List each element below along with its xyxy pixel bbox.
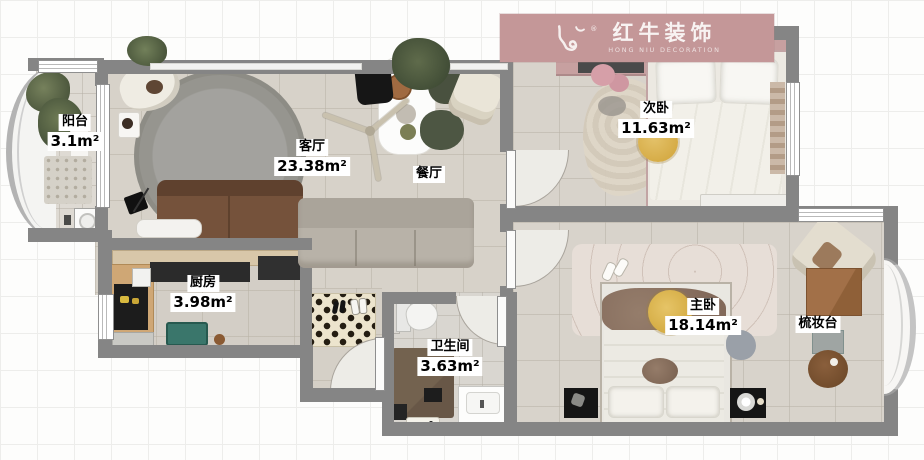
balcony-small-item	[64, 215, 71, 225]
fridge-food-item	[132, 298, 139, 304]
salad-bowl	[400, 124, 416, 140]
window	[98, 294, 114, 340]
curtain-line	[150, 63, 362, 70]
master-bed-pillow	[608, 386, 664, 418]
shower-fixture	[424, 388, 442, 402]
room-area: 18.14m²	[665, 316, 741, 336]
window	[786, 82, 800, 176]
room-label-kitchen: 厨房 3.98m²	[170, 275, 235, 312]
bathroom-faucet	[480, 400, 484, 408]
brand-banner: ® 红牛装饰 HONG NIU DECORATION	[500, 14, 774, 62]
shoes-white	[358, 298, 367, 315]
door-leaf-entry	[375, 337, 385, 391]
room-area: 3.63m²	[417, 357, 482, 377]
balcony-mat	[44, 156, 92, 204]
gray-sofa	[298, 198, 474, 268]
window	[798, 208, 884, 222]
room-area: 23.38m²	[274, 157, 350, 177]
door-leaf-master	[506, 230, 516, 289]
brown-sofa-seam	[228, 196, 230, 241]
wood-desk	[806, 268, 862, 316]
gray-sofa-seam	[414, 230, 416, 266]
brand-name-en: HONG NIU DECORATION	[608, 46, 721, 54]
side-table-tray	[122, 118, 133, 129]
room-label-master: 主卧 18.14m²	[665, 298, 741, 335]
room-name: 卫生间	[427, 339, 472, 356]
floor-plan: 阳台 3.1m² 客厅 23.38m² 餐厅 次卧 11.63m² 厨房 3.9…	[0, 0, 924, 460]
bed-pillow	[655, 57, 717, 105]
master-bed-pillow	[666, 386, 720, 418]
wall	[98, 345, 312, 358]
room-name: 厨房	[187, 275, 219, 292]
fridge-food-item	[120, 296, 129, 303]
kitchen-cart-teal	[166, 322, 208, 346]
fan-hub	[365, 126, 375, 136]
registered-mark: ®	[590, 25, 597, 33]
desk-chair-pink	[591, 64, 615, 86]
room-label-dining: 餐厅	[413, 166, 445, 183]
door-leaf-bathroom	[497, 296, 507, 347]
wall	[95, 206, 108, 234]
vanity-chair	[808, 350, 848, 388]
nightstand-dot	[757, 398, 764, 405]
wall	[786, 26, 799, 86]
bull-logo-icon	[553, 24, 587, 52]
room-label-bathroom: 卫生间 3.63m²	[417, 339, 482, 376]
wall-plant	[127, 36, 167, 66]
room-label-vanity: 梳妆台	[795, 316, 840, 333]
vanity-chair-dot	[830, 358, 838, 366]
round-cushion	[642, 358, 678, 384]
gray-sofa-seam	[355, 230, 357, 266]
room-name: 梳妆台	[795, 316, 840, 333]
dining-plant	[392, 38, 450, 90]
coffee-table	[136, 219, 202, 238]
curtain-line	[450, 63, 508, 70]
room-name: 主卧	[687, 298, 719, 315]
door-leaf-bedroom2	[506, 150, 516, 209]
refrigerator	[114, 284, 148, 330]
chaise-pillow	[146, 80, 163, 94]
kitchen-sink	[132, 268, 151, 287]
room-name: 次卧	[640, 101, 672, 118]
room-label-living: 客厅 23.38m²	[274, 139, 350, 176]
window	[38, 60, 98, 73]
room-name: 餐厅	[413, 166, 445, 183]
brand-name-cn: 红牛装饰	[612, 23, 716, 44]
kitchen-stool	[214, 334, 225, 345]
curtain-strip	[770, 82, 785, 174]
wall	[504, 422, 898, 436]
room-label-bedroom2: 次卧 11.63m²	[618, 101, 694, 138]
room-area: 3.1m²	[48, 132, 103, 152]
wall	[382, 422, 562, 436]
room-area: 11.63m²	[618, 119, 694, 139]
room-name: 客厅	[296, 139, 328, 156]
room-name: 阳台	[59, 114, 91, 131]
nightstand-lamp-disc	[737, 393, 755, 411]
room-label-balcony: 阳台 3.1m²	[48, 114, 103, 151]
room-area: 3.98m²	[170, 293, 235, 313]
wall	[98, 238, 312, 250]
